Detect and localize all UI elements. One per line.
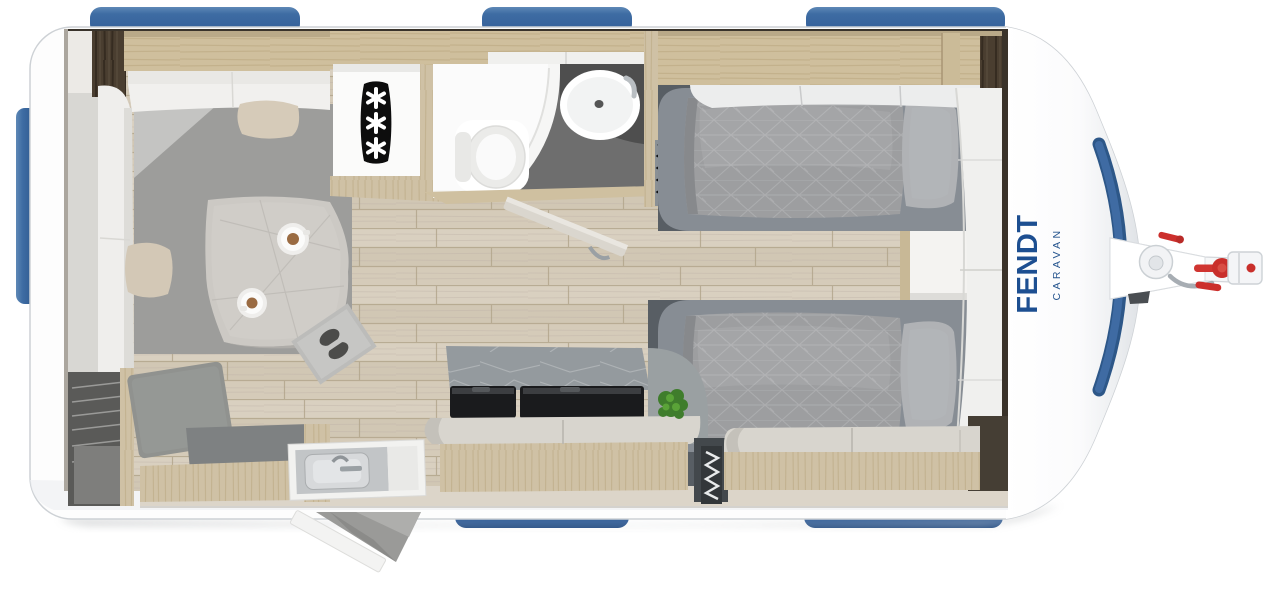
svg-text:CARAVAN: CARAVAN [1051, 227, 1063, 300]
svg-text:FENDT: FENDT [1012, 214, 1044, 313]
